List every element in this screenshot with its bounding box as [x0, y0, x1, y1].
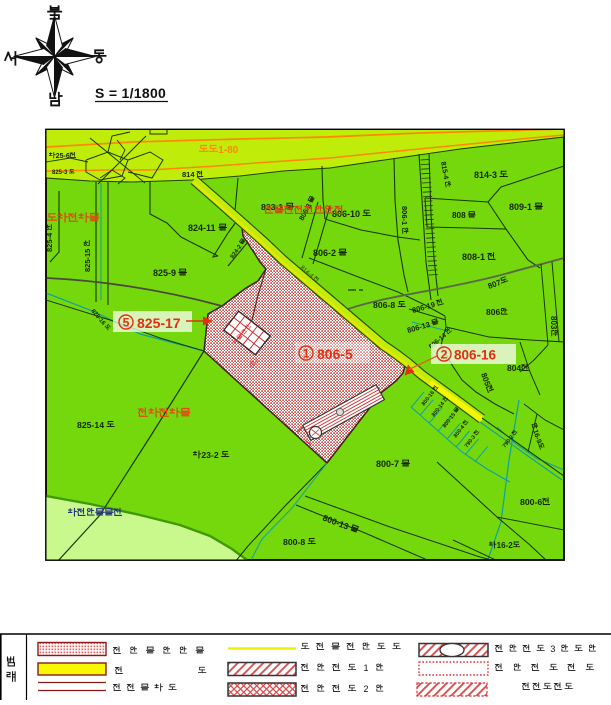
svg-text:2: 2 [441, 347, 448, 361]
svg-text:803: 803 [549, 316, 558, 330]
svg-text:809-1: 809-1 [509, 202, 532, 212]
svg-text:800-7: 800-7 [376, 459, 399, 469]
svg-text:1: 1 [364, 663, 376, 673]
svg-text:806-16: 806-16 [454, 348, 497, 363]
svg-text:808-1: 808-1 [462, 252, 485, 262]
svg-text:825-9: 825-9 [153, 268, 176, 278]
svg-text:814: 814 [182, 170, 195, 179]
svg-text:1: 1 [303, 346, 310, 360]
svg-text:806: 806 [486, 307, 500, 317]
svg-text:825-15: 825-15 [83, 249, 92, 272]
svg-text:825-14: 825-14 [77, 420, 104, 430]
svg-text:2: 2 [364, 684, 376, 694]
svg-text:804: 804 [507, 363, 521, 373]
svg-text:25-6: 25-6 [56, 153, 70, 160]
svg-text:814-3: 814-3 [474, 170, 497, 180]
svg-text:16-2: 16-2 [497, 541, 514, 550]
svg-text:824-11: 824-11 [188, 223, 216, 233]
svg-text:5: 5 [123, 315, 130, 329]
svg-text:808: 808 [452, 211, 466, 220]
svg-text:806-5: 806-5 [317, 346, 353, 362]
svg-text:1-80: 1-80 [218, 145, 238, 156]
svg-text:3: 3 [550, 644, 560, 654]
svg-text:806-8: 806-8 [373, 300, 395, 310]
svg-text:23-2: 23-2 [201, 450, 219, 460]
svg-text:806-1: 806-1 [400, 206, 409, 225]
svg-text:800-8: 800-8 [283, 537, 305, 547]
svg-text:S = 1/1800: S = 1/1800 [95, 85, 166, 101]
svg-text:806-2: 806-2 [313, 248, 336, 258]
svg-text:800-6: 800-6 [520, 497, 542, 507]
svg-text:825-17: 825-17 [137, 315, 181, 331]
svg-text:825-3: 825-3 [52, 170, 68, 176]
